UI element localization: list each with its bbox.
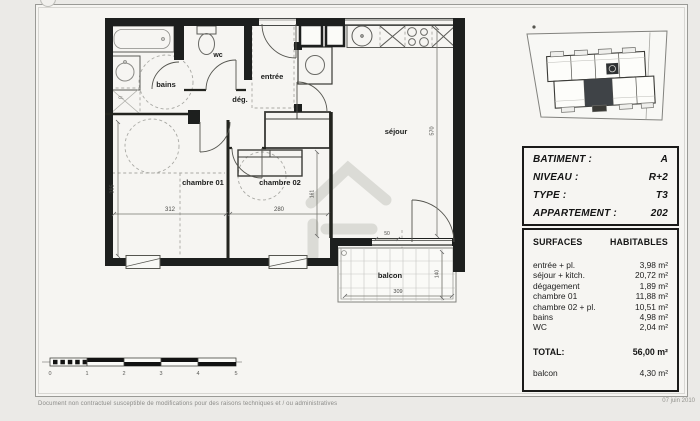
dashed-guides	[110, 24, 456, 256]
label-wc: wc	[212, 52, 222, 59]
surface-label: WC	[533, 322, 547, 332]
site-key-plan	[527, 25, 667, 120]
surface-row: chambre 02 + pl. 10,51 m²	[533, 302, 668, 312]
dim-280: 280	[274, 207, 285, 213]
surfaces-balcon-row: balcon 4,30 m²	[533, 368, 668, 378]
balcon-label: balcon	[533, 368, 558, 378]
info-value: R+2	[649, 172, 668, 183]
dim-161: 161	[310, 190, 316, 199]
kitchen-counter	[347, 26, 455, 48]
wall-jamb-sejour	[294, 104, 302, 112]
washbasin	[110, 56, 140, 90]
door-entrance-opening	[259, 19, 296, 25]
surface-label: chambre 02 + pl.	[533, 302, 596, 312]
stair-core	[606, 63, 619, 75]
kitchen-sink	[352, 26, 372, 46]
window-kitchen	[345, 19, 453, 25]
surface-row: séjour + kitch. 20,72 m²	[533, 270, 668, 280]
surface-row: bains 4,98 m²	[533, 312, 668, 322]
surface-label: séjour + kitch.	[533, 270, 585, 280]
scale-bar: 0 1 2 3 4 5	[42, 358, 242, 377]
label-cl: CL	[118, 95, 124, 100]
north-dot	[532, 25, 535, 28]
info-value: T3	[656, 190, 668, 201]
wall-jamb-bains	[188, 110, 200, 124]
wall-wc-entree	[244, 18, 252, 80]
surface-row: dégagement 1,89 m²	[533, 281, 668, 291]
door-wc	[206, 60, 236, 90]
info-value: 202	[651, 208, 668, 219]
date-text: 07 juin 2010	[595, 398, 695, 404]
window-chambre01	[126, 256, 160, 269]
water-heater	[298, 47, 332, 84]
dim-309: 309	[393, 289, 402, 295]
fixtures	[110, 26, 455, 177]
entree-zone-outline	[252, 24, 294, 108]
label-chambre02: chambre 02	[259, 178, 301, 187]
window-chambre02	[269, 256, 307, 269]
surface-label: chambre 01	[533, 291, 577, 301]
surface-row: entrée + pl. 3,98 m²	[533, 260, 668, 270]
surface-value: 1,89 m²	[640, 281, 668, 291]
scale-tick-3: 3	[159, 371, 162, 377]
dim-385: 385	[110, 184, 116, 193]
info-row-niveau: NIVEAU : R+2	[533, 172, 668, 190]
info-value: A	[661, 154, 668, 165]
surface-label: dégagement	[533, 281, 580, 291]
label-entree: entrée	[261, 72, 284, 81]
surfaces-box: SURFACES HABITABLES entrée + pl. 3,98 m²…	[522, 228, 679, 392]
surface-value: 10,51 m²	[635, 302, 668, 312]
info-row-type: TYPE : T3	[533, 190, 668, 208]
surface-label: entrée + pl.	[533, 260, 575, 270]
unit-info-box: BATIMENT : A NIVEAU : R+2 TYPE : T3 APPA…	[522, 146, 679, 226]
dim-50: 50	[384, 231, 390, 237]
door-chambre01	[200, 122, 230, 152]
info-row-batiment: BATIMENT : A	[533, 154, 668, 172]
scale-tick-4: 4	[196, 371, 199, 377]
label-sejour: séjour	[385, 127, 408, 136]
dim-140: 140	[435, 270, 441, 279]
scanned-floor-plan-page: { "plan": { "room_labels": { "bains": "b…	[0, 0, 700, 421]
dim-312: 312	[165, 207, 176, 213]
toilet	[197, 26, 216, 55]
shaft-boxes	[300, 25, 344, 46]
scale-tick-2: 2	[122, 371, 125, 377]
scale-tick-5: 5	[234, 371, 237, 377]
wall-stub-wc	[174, 18, 184, 60]
label-balcon: balcon	[378, 271, 403, 280]
surface-label: bains	[533, 312, 553, 322]
door-entrance	[262, 24, 296, 58]
wall-left	[105, 18, 113, 266]
surface-value: 4,98 m²	[640, 312, 668, 322]
selected-apartment-unit	[584, 78, 613, 106]
wall-right	[453, 18, 465, 272]
scale-tick-1: 1	[85, 371, 88, 377]
label-chambre01: chambre 01	[182, 178, 224, 187]
closet-chambre02	[238, 150, 302, 176]
dim-570: 570	[430, 126, 436, 135]
surfaces-total-row: TOTAL: 56,00 m²	[533, 347, 668, 357]
info-row-appartement: APPARTEMENT : 202	[533, 208, 668, 226]
total-label: TOTAL:	[533, 347, 564, 357]
scale-tick-0: 0	[48, 371, 51, 377]
closet-cl-cross	[110, 88, 140, 114]
balcon-value: 4,30 m²	[640, 368, 668, 378]
label-bains: bains	[156, 80, 176, 89]
doors	[152, 24, 454, 242]
turning-circle-chambre01	[125, 119, 179, 173]
surfaces-header: SURFACES HABITABLES	[533, 237, 668, 247]
surface-value: 11,88 m²	[636, 291, 668, 301]
disclaimer-text: Document non contractuel susceptible de …	[38, 401, 337, 407]
surfaces-header-left: SURFACES	[533, 237, 583, 247]
info-label: APPARTEMENT :	[533, 208, 617, 219]
wall-step	[330, 238, 338, 266]
total-value: 56,00 m²	[633, 347, 668, 357]
surface-value: 20,72 m²	[635, 270, 668, 280]
info-label: TYPE :	[533, 190, 566, 201]
surface-value: 3,98 m²	[640, 260, 668, 270]
door-balcony	[412, 200, 454, 242]
info-label: NIVEAU :	[533, 172, 579, 183]
surface-row: chambre 01 11,88 m²	[533, 291, 668, 301]
info-label: BATIMENT :	[533, 154, 592, 165]
surface-value: 2,04 m²	[640, 322, 668, 332]
surfaces-header-right: HABITABLES	[610, 237, 668, 247]
surface-row: WC 2,04 m²	[533, 322, 668, 332]
bathtub	[110, 26, 174, 52]
stove-burners	[408, 28, 429, 47]
surfaces-list: entrée + pl. 3,98 m² séjour + kitch. 20,…	[533, 260, 668, 333]
closet-entree	[265, 112, 330, 148]
label-degagement: dég.	[232, 95, 247, 104]
